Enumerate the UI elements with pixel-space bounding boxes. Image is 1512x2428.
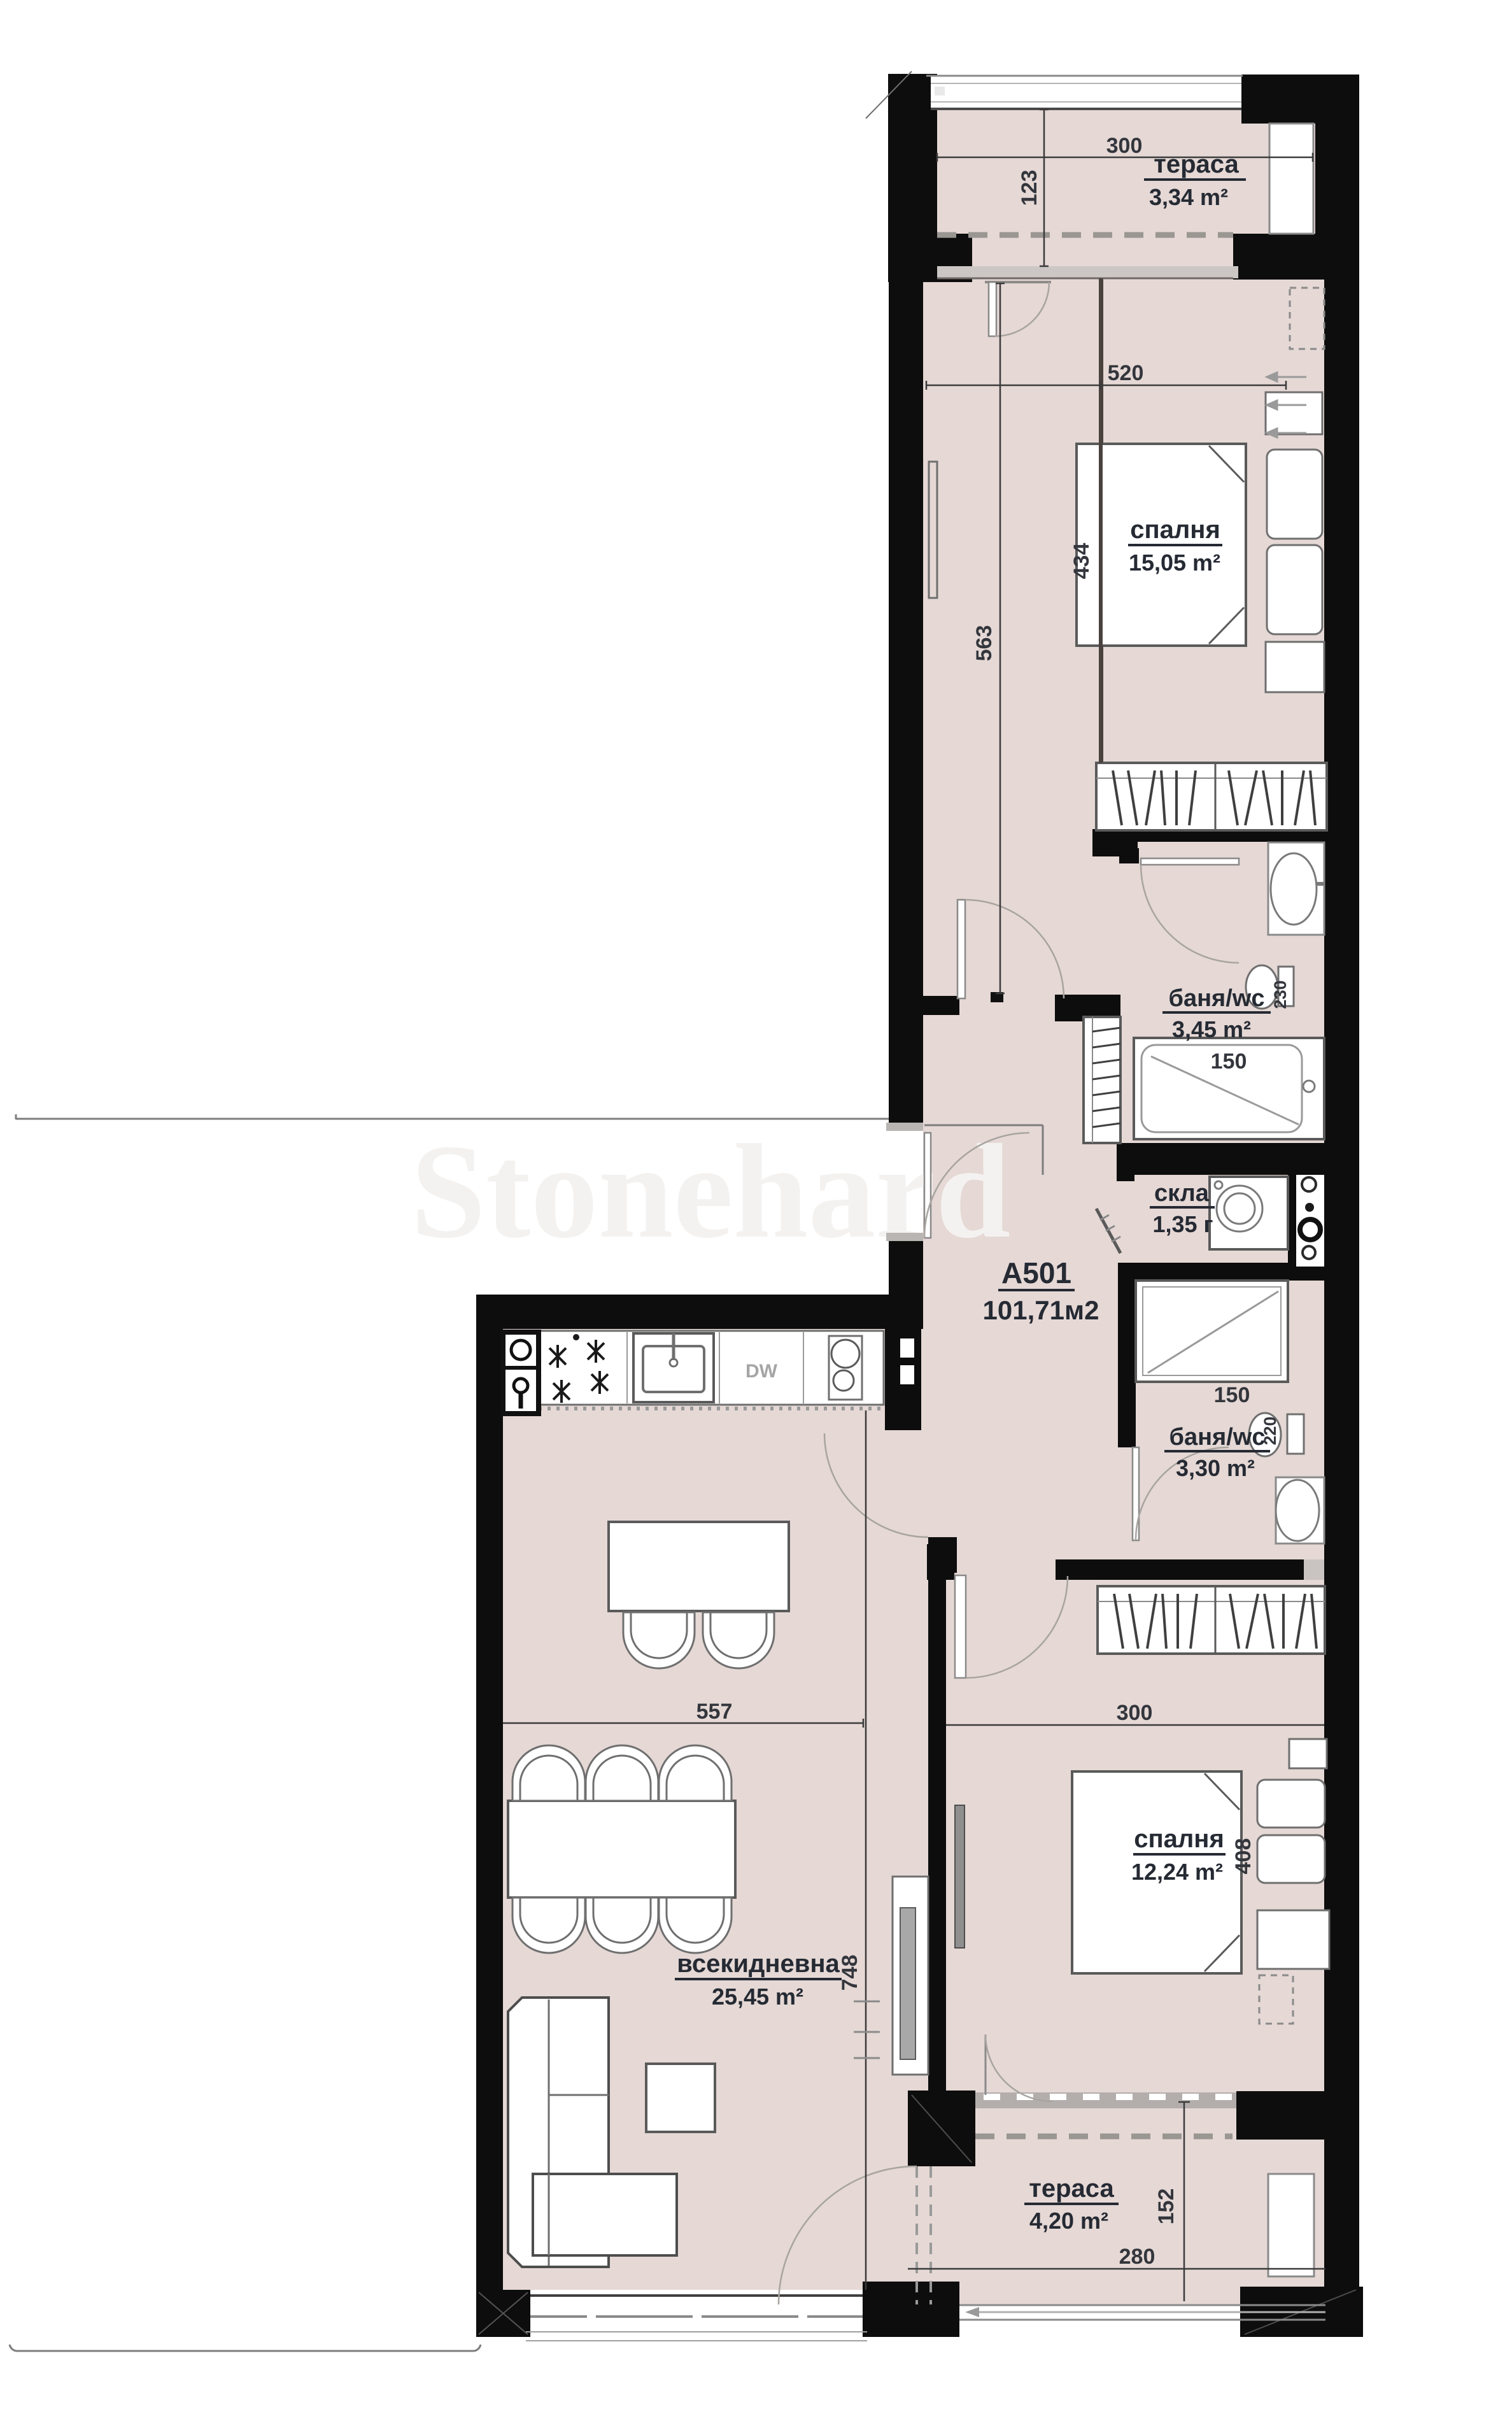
svg-text:тераса: тераса (1154, 150, 1239, 178)
svg-text:101,71м2: 101,71м2 (983, 1295, 1099, 1325)
svg-text:150: 150 (1211, 1049, 1247, 1074)
svg-text:спалня: спалня (1134, 1825, 1224, 1853)
svg-text:434: 434 (1070, 543, 1094, 579)
svg-text:A501: A501 (1001, 1256, 1071, 1289)
svg-text:12,24 m²: 12,24 m² (1131, 1859, 1223, 1885)
svg-text:спалня: спалня (1130, 516, 1220, 544)
svg-text:баня/wc: баня/wc (1169, 1424, 1266, 1451)
svg-text:230: 230 (1271, 980, 1290, 1009)
svg-text:408: 408 (1231, 1838, 1255, 1875)
svg-text:4,20 m²: 4,20 m² (1029, 2208, 1108, 2234)
svg-text:557: 557 (696, 1700, 733, 1724)
svg-text:баня/wc: баня/wc (1169, 985, 1265, 1012)
svg-text:280: 280 (1119, 2245, 1155, 2269)
svg-text:3,30 m²: 3,30 m² (1176, 1455, 1255, 1481)
svg-text:520: 520 (1108, 361, 1144, 385)
svg-text:25,45 m²: 25,45 m² (712, 1984, 803, 2010)
svg-text:300: 300 (1117, 1701, 1153, 1725)
svg-text:1,35 г: 1,35 г (1152, 1211, 1213, 1237)
svg-text:123: 123 (1017, 170, 1042, 206)
svg-text:тераса: тераса (1029, 2175, 1114, 2203)
svg-text:DW: DW (745, 1361, 778, 1382)
svg-text:300: 300 (1106, 134, 1143, 158)
svg-text:3,34 m²: 3,34 m² (1149, 184, 1228, 210)
svg-text:152: 152 (1154, 2189, 1178, 2225)
svg-text:748: 748 (838, 1955, 862, 1991)
svg-text:3,45 m²: 3,45 m² (1172, 1016, 1251, 1042)
svg-text:150: 150 (1214, 1383, 1250, 1407)
svg-text:15,05 m²: 15,05 m² (1129, 550, 1220, 576)
svg-text:563: 563 (972, 625, 996, 662)
svg-text:всекидневна: всекидневна (677, 1950, 840, 1978)
svg-text:скла: скла (1154, 1180, 1210, 1207)
